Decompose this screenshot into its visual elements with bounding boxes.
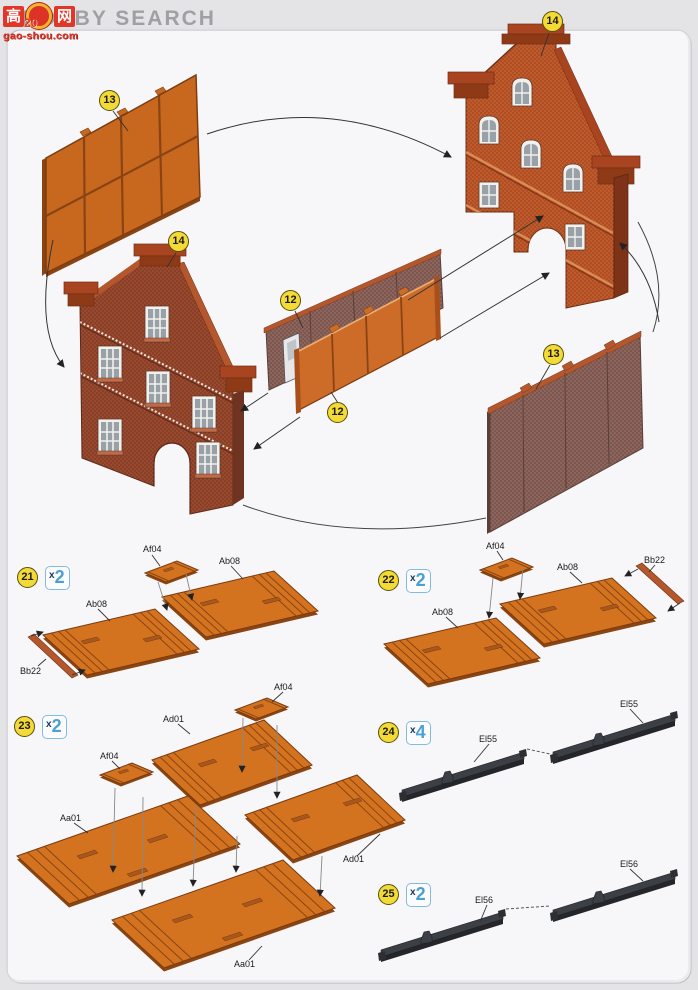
step-number-23: 23 — [14, 716, 35, 737]
quantity-badge: x2 — [42, 715, 67, 739]
part-label-el56: El56 — [620, 859, 638, 869]
instruction-sheet-page: HOBBY SEARCH 高 网 gao-shou.com 20 13 14 1… — [0, 0, 698, 990]
left-cornice — [64, 282, 98, 294]
step-number-22: 22 — [378, 570, 399, 591]
part-label-bb22: Bb22 — [20, 666, 41, 676]
sheet-artwork — [0, 0, 698, 990]
part-label-ab08: Ab08 — [557, 562, 578, 572]
qty-n: 2 — [52, 717, 62, 735]
step-number-21: 21 — [17, 567, 38, 588]
part-label-ad01: Ad01 — [343, 854, 364, 864]
part-label-el55: El55 — [479, 734, 497, 744]
callout-12: 12 — [327, 402, 348, 423]
step-number-25: 25 — [378, 884, 399, 905]
quantity-badge: x2 — [406, 569, 431, 593]
watermark-site-text: gao-shou.com — [3, 30, 103, 42]
quantity-badge: x4 — [406, 721, 431, 745]
left-cornice — [448, 72, 494, 84]
part-label-bb22: Bb22 — [644, 555, 665, 565]
part-label-el56: El56 — [475, 895, 493, 905]
part-label-af04: Af04 — [143, 544, 162, 554]
callout-13: 13 — [99, 90, 120, 111]
callout-12: 12 — [280, 290, 301, 311]
part-label-el55: El55 — [620, 699, 638, 709]
part-label-ab08: Ab08 — [219, 556, 240, 566]
part-label-af04: Af04 — [100, 751, 119, 761]
window — [512, 78, 532, 106]
watermark-char-right: 网 — [54, 6, 75, 27]
part-label-ad01: Ad01 — [163, 714, 184, 724]
watermark-char-left: 高 — [3, 6, 24, 27]
qty-n: 2 — [55, 568, 65, 586]
part-label-af04: Af04 — [274, 682, 293, 692]
part-label-aa01: Aa01 — [234, 959, 255, 969]
step-number-24: 24 — [378, 722, 399, 743]
right-cornice — [592, 156, 640, 168]
watermark-number: 20 — [24, 16, 37, 30]
callout-13: 13 — [543, 344, 564, 365]
quantity-badge: x2 — [406, 883, 431, 907]
side-column — [614, 174, 628, 298]
callout-14: 14 — [542, 11, 563, 32]
part-label-af04: Af04 — [486, 541, 505, 551]
part-label-aa01: Aa01 — [60, 813, 81, 823]
part-label-ab08: Ab08 — [86, 599, 107, 609]
qty-n: 2 — [416, 571, 426, 589]
quantity-badge: x2 — [45, 566, 70, 590]
side-column — [233, 390, 244, 505]
callout-14: 14 — [168, 231, 189, 252]
watermark-logo: 高 网 gao-shou.com 20 — [3, 3, 103, 42]
part-label-ab08: Ab08 — [432, 607, 453, 617]
qty-n: 2 — [416, 885, 426, 903]
qty-n: 4 — [416, 723, 426, 741]
right-cornice — [220, 366, 256, 378]
